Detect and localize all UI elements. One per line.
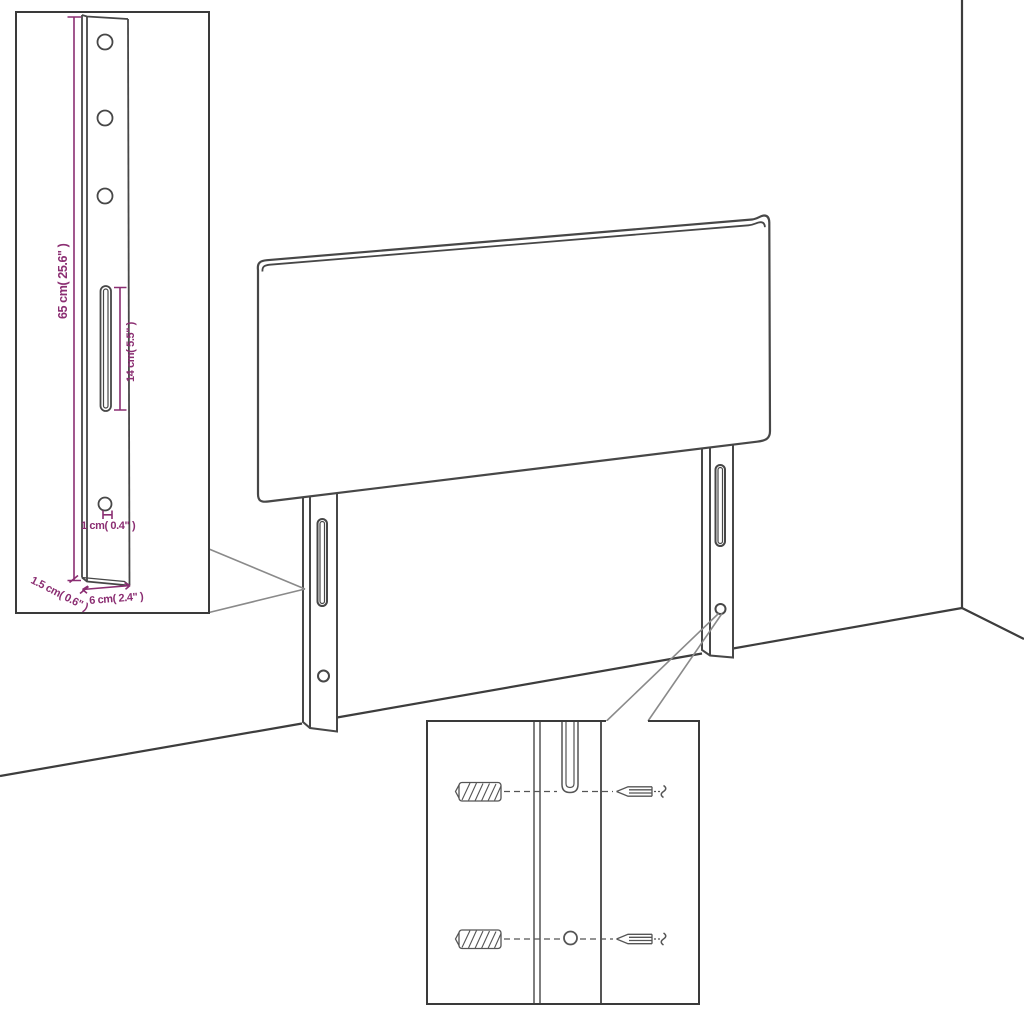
- mounting-detail-inset: [427, 721, 699, 1004]
- dimension-slot-label: 14 cm( 5.5" ): [125, 321, 137, 382]
- headboard-left-leg: [303, 494, 337, 732]
- wall-floor-line-right: [962, 608, 1024, 639]
- mounting-inset-box: [427, 721, 699, 1004]
- headboard-assembly-diagram: 65 cm( 25.6" ) 14 cm( 5.5" ) 1 cm( 0.4" …: [0, 0, 1024, 1024]
- headboard-panel: [258, 216, 770, 502]
- bracket-detail-inset: 65 cm( 25.6" ) 14 cm( 5.5" ) 1 cm( 0.4" …: [16, 12, 209, 614]
- dimension-height-label: 65 cm( 25.6" ): [56, 243, 70, 319]
- panel-outline: [258, 216, 770, 502]
- bracket-callout-lower-line: [209, 589, 305, 613]
- bracket-callout-upper-line: [209, 549, 305, 589]
- dimension-hole-label: 1 cm( 0.4" ): [81, 520, 136, 532]
- bracket-callout-lines: [209, 549, 305, 613]
- diagram-canvas: 65 cm( 25.6" ) 14 cm( 5.5" ) 1 cm( 0.4" …: [0, 0, 1024, 1024]
- mounting-callout-right-line: [648, 614, 722, 722]
